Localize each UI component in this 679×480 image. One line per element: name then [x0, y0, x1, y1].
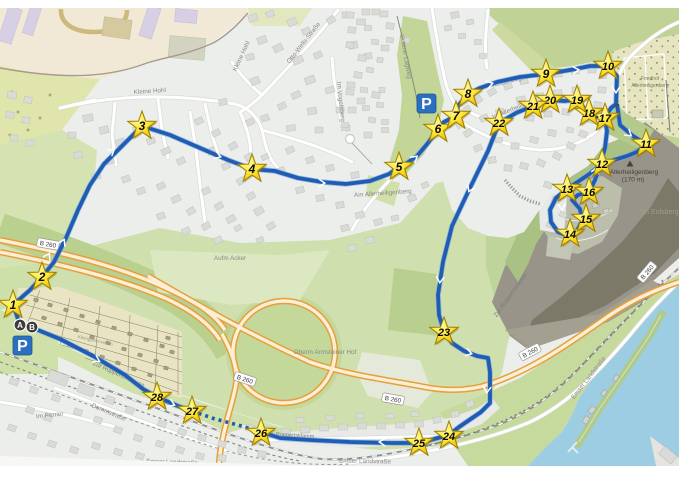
svg-text:Aufm Acker: Aufm Acker: [214, 255, 246, 262]
svg-text:6: 6: [435, 122, 442, 136]
svg-text:4: 4: [248, 162, 256, 176]
svg-text:15: 15: [580, 214, 593, 226]
svg-text:P: P: [17, 338, 28, 355]
svg-text:8: 8: [465, 87, 472, 101]
svg-text:14: 14: [564, 229, 576, 241]
svg-text:17: 17: [599, 113, 612, 125]
svg-text:Oberm Armsteiner Hof: Oberm Armsteiner Hof: [294, 349, 357, 356]
svg-text:Allerheiligenberg: Allerheiligenberg: [631, 83, 668, 89]
svg-text:16: 16: [583, 187, 596, 199]
svg-text:Allerheiligenberg: Allerheiligenberg: [610, 169, 659, 176]
svg-text:26: 26: [254, 428, 268, 440]
svg-text:B: B: [29, 323, 35, 332]
svg-text:P: P: [421, 96, 432, 113]
svg-text:25: 25: [412, 438, 426, 450]
svg-text:19: 19: [571, 95, 584, 107]
svg-text:Im Eulsberg: Im Eulsberg: [641, 209, 678, 216]
svg-text:13: 13: [561, 184, 573, 196]
svg-text:28: 28: [150, 392, 164, 404]
svg-text:2: 2: [38, 270, 46, 284]
svg-text:22: 22: [492, 118, 505, 130]
svg-text:Friedhof: Friedhof: [641, 76, 660, 82]
svg-text:11: 11: [640, 139, 651, 151]
svg-text:27: 27: [185, 406, 199, 418]
svg-text:1: 1: [10, 298, 17, 312]
svg-text:3: 3: [139, 119, 146, 133]
svg-text:12: 12: [596, 159, 608, 171]
svg-text:21: 21: [526, 101, 539, 113]
svg-text:A: A: [17, 321, 23, 330]
svg-text:(170 m): (170 m): [622, 177, 644, 184]
svg-text:Emser Landstraße: Emser Landstraße: [339, 458, 391, 466]
svg-text:5: 5: [396, 160, 403, 174]
svg-text:24: 24: [442, 431, 455, 443]
svg-text:23: 23: [437, 327, 450, 339]
svg-text:10: 10: [602, 61, 615, 73]
svg-text:9: 9: [543, 67, 550, 81]
